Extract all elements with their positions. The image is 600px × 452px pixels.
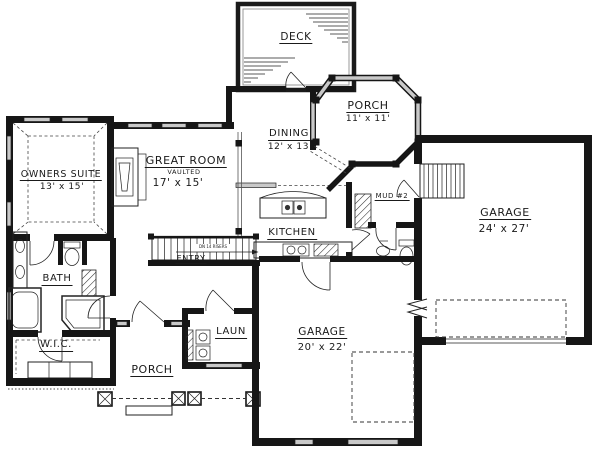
room-name: DINING bbox=[268, 129, 310, 141]
room-name: LAUN bbox=[215, 327, 247, 339]
room-name: PORCH bbox=[130, 364, 173, 377]
label-stair-note: DN 14 RISERS bbox=[199, 245, 227, 249]
label-bath: BATH bbox=[42, 274, 73, 286]
room-name: OWNERS SUITE bbox=[20, 170, 102, 181]
garage-side-walls bbox=[416, 135, 592, 345]
front-porch-structure bbox=[98, 392, 260, 415]
room-name: GARAGE bbox=[297, 327, 347, 339]
label-dining-dims: 12' x 13' bbox=[268, 143, 312, 152]
room-dims: 17' x 15' bbox=[153, 177, 204, 189]
label-great-room: GREAT ROOM bbox=[145, 155, 227, 168]
room-name: DECK bbox=[279, 32, 312, 44]
room-dims: 20' x 22' bbox=[298, 342, 347, 353]
room-dims: 12' x 13' bbox=[268, 142, 312, 152]
label-side-porch: PORCH bbox=[346, 100, 389, 113]
room-dims: 24' x 27' bbox=[479, 223, 530, 235]
label-entry: ENTRY bbox=[176, 255, 207, 264]
label-garage-side: GARAGE bbox=[479, 207, 531, 220]
room-name: ENTRY bbox=[176, 255, 207, 264]
fireplace bbox=[112, 148, 146, 206]
label-great-room-note: VAULTED bbox=[167, 169, 200, 176]
label-wic: W.I.C. bbox=[39, 340, 73, 352]
label-garage-side-dims: 24' x 27' bbox=[479, 224, 530, 235]
porch-posts bbox=[98, 392, 260, 406]
label-mud-room: MUD #2 bbox=[375, 193, 410, 201]
label-kitchen: KITCHEN bbox=[267, 228, 317, 240]
label-dining: DINING bbox=[268, 129, 310, 141]
room-note: VAULTED bbox=[167, 168, 200, 176]
room-name: GARAGE bbox=[479, 207, 531, 220]
label-deck: DECK bbox=[279, 32, 312, 44]
label-great-room-dims: 17' x 15' bbox=[153, 178, 204, 189]
floor-plan-page: DECK PORCH 11' x 11' DINING 12' x 13' GR… bbox=[0, 0, 600, 452]
room-dims: 11' x 11' bbox=[346, 114, 390, 124]
label-owners-suite-dims: 13' x 15' bbox=[40, 183, 84, 192]
room-name: W.I.C. bbox=[39, 340, 73, 352]
label-garage-front-dims: 20' x 22' bbox=[298, 343, 347, 354]
label-owners-suite: OWNERS SUITE bbox=[20, 170, 102, 181]
label-side-porch-dims: 11' x 11' bbox=[346, 115, 390, 124]
bath-walls-fixtures bbox=[6, 232, 116, 386]
label-garage-front: GARAGE bbox=[297, 327, 347, 339]
label-front-porch: PORCH bbox=[130, 364, 173, 377]
stair-note: DN 14 RISERS bbox=[199, 244, 227, 249]
room-dims: 13' x 15' bbox=[40, 182, 84, 192]
front-entry bbox=[114, 301, 190, 327]
room-name: KITCHEN bbox=[267, 228, 317, 240]
kitchen-fixtures bbox=[254, 182, 370, 262]
room-name: MUD #2 bbox=[375, 193, 410, 201]
room-name: BATH bbox=[42, 274, 73, 286]
room-name: PORCH bbox=[346, 100, 389, 113]
label-laundry: LAUN bbox=[215, 327, 247, 339]
room-name: GREAT ROOM bbox=[145, 155, 227, 168]
